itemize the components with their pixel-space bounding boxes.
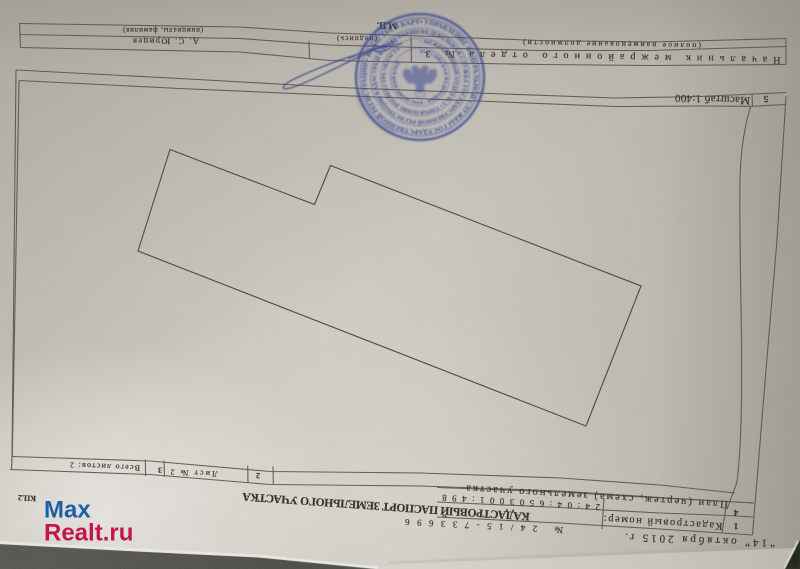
svg-text:КП.2: КП.2 (18, 493, 36, 503)
svg-text:5: 5 (763, 93, 768, 103)
svg-text:(инициалы, фамилия): (инициалы, фамилия) (122, 26, 203, 34)
svg-text:3: 3 (158, 465, 162, 474)
svg-text:Realt.ru: Realt.ru (44, 520, 133, 547)
svg-text:2: 2 (256, 471, 260, 480)
